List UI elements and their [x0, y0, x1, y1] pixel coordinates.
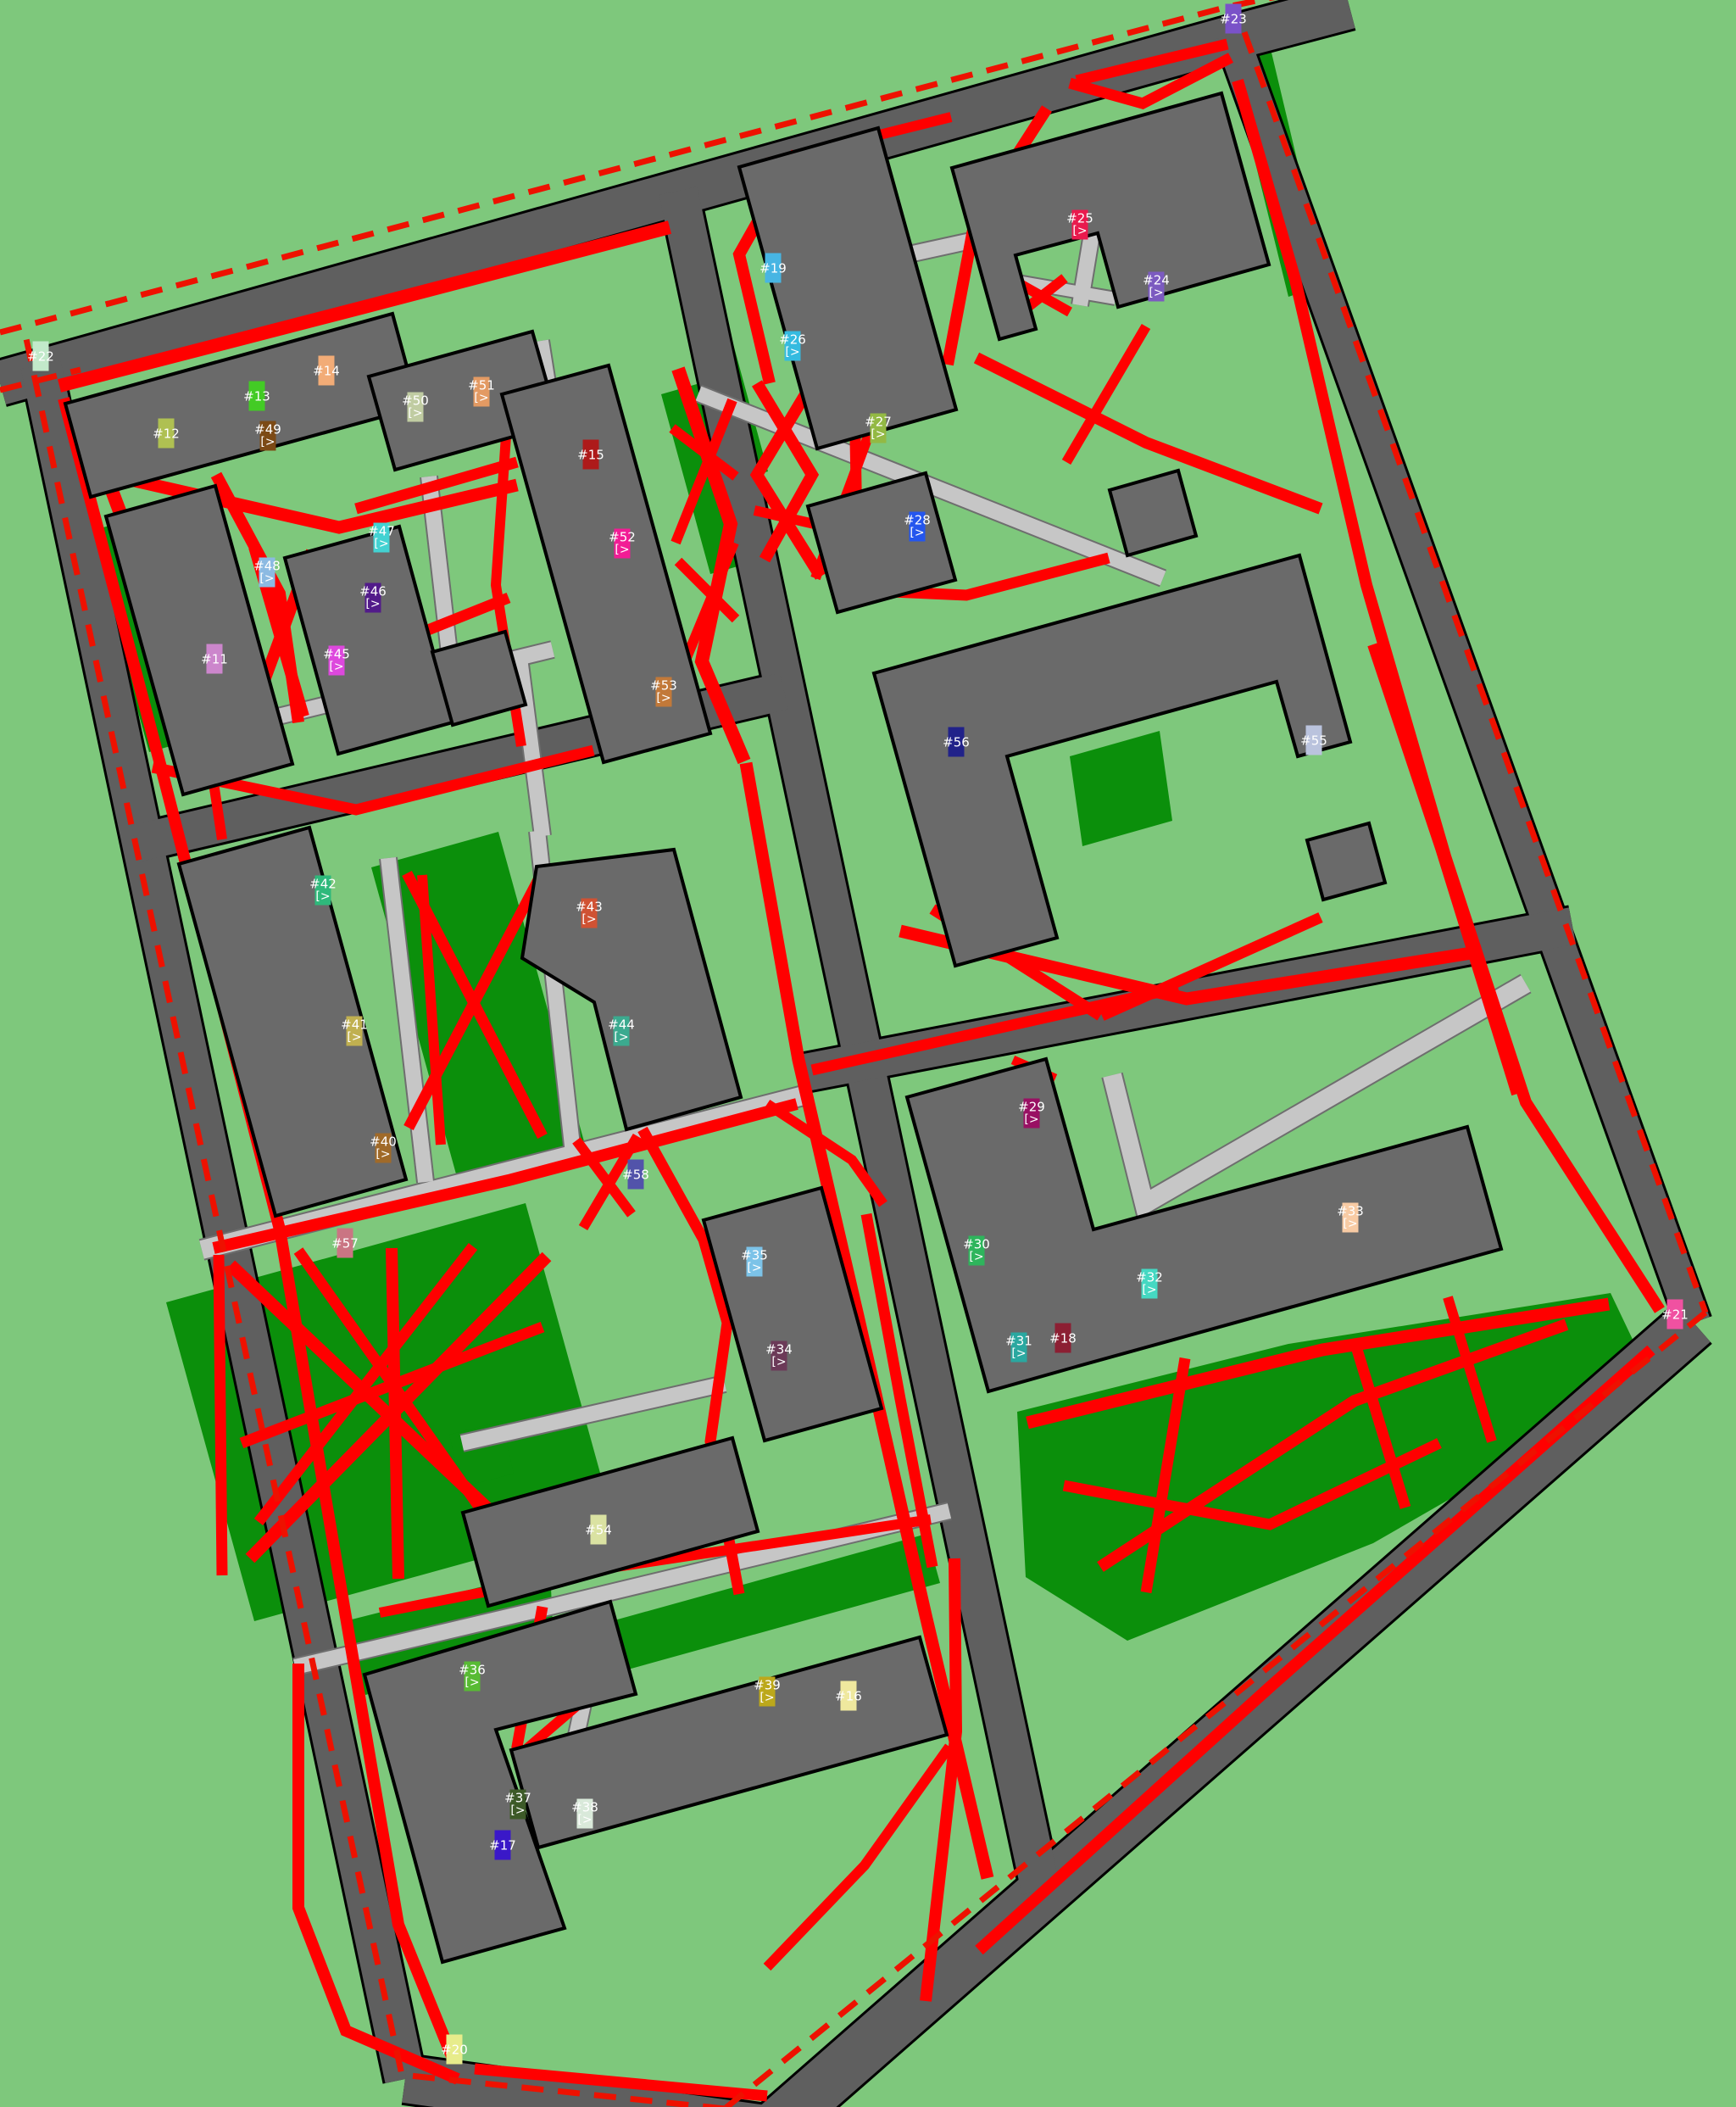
agent-id-label: #54 — [585, 1523, 612, 1536]
agent-flag-icon: [> — [408, 408, 422, 421]
agent-id-label: #12 — [153, 426, 180, 440]
agent-marker[interactable]: #23 — [1226, 4, 1242, 34]
agent-marker[interactable]: #31[> — [1011, 1333, 1027, 1363]
agent-flag-icon: [> — [510, 1805, 525, 1818]
agent-flag-icon: [> — [771, 1357, 786, 1369]
agent-marker[interactable]: #43[> — [581, 899, 598, 928]
agent-flag-icon: [> — [910, 527, 924, 540]
agent-marker[interactable]: #25[> — [1072, 210, 1088, 240]
agent-marker[interactable]: #14 — [319, 356, 335, 386]
agent-id-label: #51 — [468, 379, 495, 393]
agent-marker[interactable]: #13 — [249, 382, 265, 411]
agent-id-label: #43 — [576, 900, 603, 914]
agent-marker[interactable]: #49[> — [260, 421, 276, 451]
agent-id-label: #22 — [27, 349, 54, 363]
agent-id-label: #33 — [1337, 1205, 1364, 1218]
agent-flag-icon: [> — [474, 393, 488, 405]
agent-flag-icon: [> — [1149, 287, 1163, 300]
agent-flag-icon: [> — [785, 347, 799, 360]
agent-id-label: #42 — [309, 878, 337, 891]
agent-id-label: #58 — [622, 1168, 649, 1181]
agent-marker[interactable]: #41[> — [347, 1017, 363, 1046]
agent-flag-icon: [> — [1142, 1285, 1156, 1297]
agent-flag-icon: [> — [329, 661, 343, 674]
agent-marker[interactable]: #11 — [207, 644, 223, 674]
agent-id-label: #16 — [835, 1689, 862, 1703]
agent-marker[interactable]: #50[> — [408, 393, 424, 422]
agent-marker[interactable]: #18 — [1055, 1324, 1071, 1353]
agent-flag-icon: [> — [969, 1251, 983, 1264]
agent-flag-icon: [> — [1024, 1114, 1038, 1127]
agent-flag-icon: [> — [747, 1263, 761, 1275]
agent-id-label: #52 — [609, 531, 636, 544]
agent-flag-icon: [> — [759, 1692, 774, 1705]
agent-id-label: #23 — [1220, 12, 1247, 25]
agent-marker[interactable]: #26[> — [785, 332, 801, 361]
agent-id-label: #18 — [1049, 1331, 1077, 1345]
agent-marker[interactable]: #21 — [1667, 1300, 1683, 1329]
agent-flag-icon: [> — [871, 429, 885, 442]
agent-id-label: #57 — [331, 1236, 359, 1250]
agent-marker[interactable]: #28[> — [910, 512, 926, 542]
agent-id-label: #17 — [489, 1838, 516, 1852]
agent-id-label: #53 — [650, 679, 677, 693]
agent-id-label: #30 — [963, 1238, 990, 1251]
agent-id-label: #25 — [1066, 212, 1093, 226]
agent-marker[interactable]: #56 — [949, 727, 965, 757]
agent-id-label: #26 — [779, 333, 806, 347]
agent-id-label: #20 — [441, 2043, 468, 2056]
agent-marker[interactable]: #35[> — [747, 1247, 763, 1277]
agent-id-label: #55 — [1300, 733, 1327, 747]
agent-flag-icon: [> — [614, 1032, 628, 1045]
agent-marker[interactable]: #47[> — [374, 523, 390, 553]
agent-id-label: #56 — [943, 735, 970, 749]
agent-id-label: #49 — [254, 423, 281, 437]
agent-id-label: #37 — [504, 1792, 531, 1805]
agent-marker[interactable]: #55 — [1306, 726, 1322, 755]
simulation-page: { "colors": { "background": "#7EC87C", "… — [0, 0, 1736, 2107]
agent-marker[interactable]: #34[> — [771, 1341, 787, 1371]
agent-id-label: #32 — [1136, 1271, 1163, 1285]
agent-id-label: #36 — [459, 1664, 486, 1677]
agent-flag-icon: [> — [376, 1149, 390, 1162]
agent-marker[interactable]: #37[> — [510, 1790, 526, 1820]
agent-marker[interactable]: #30[> — [969, 1236, 985, 1266]
agent-marker[interactable]: #52[> — [615, 529, 631, 559]
agent-id-label: #41 — [341, 1018, 368, 1032]
agent-flag-icon: [> — [465, 1677, 479, 1690]
agent-id-label: #40 — [370, 1135, 397, 1149]
agent-marker[interactable]: #45[> — [329, 646, 345, 676]
agent-id-label: #44 — [608, 1018, 635, 1032]
agent-flag-icon: [> — [1011, 1348, 1026, 1361]
agent-marker[interactable]: #48[> — [259, 558, 275, 588]
agent-marker[interactable]: #12 — [159, 419, 175, 449]
agent-id-label: #48 — [253, 560, 281, 573]
agent-id-label: #47 — [368, 525, 395, 538]
agent-marker[interactable]: #32[> — [1142, 1269, 1158, 1299]
agent-marker[interactable]: #40[> — [376, 1134, 392, 1163]
agent-marker[interactable]: #51[> — [474, 377, 490, 407]
agent-flag-icon: [> — [260, 437, 275, 449]
agent-marker[interactable]: #57 — [337, 1229, 353, 1258]
agent-flag-icon: [> — [577, 1814, 592, 1827]
agent-marker[interactable]: #46[> — [365, 583, 381, 613]
agent-id-label: #31 — [1005, 1335, 1032, 1348]
agent-marker[interactable]: #38[> — [577, 1799, 593, 1829]
agent-flag-icon: [> — [365, 599, 380, 611]
agent-marker[interactable]: #33[> — [1343, 1203, 1359, 1233]
agent-marker[interactable]: #19 — [765, 254, 782, 283]
agent-marker[interactable]: #20 — [447, 2035, 463, 2065]
agent-id-label: #38 — [571, 1801, 598, 1814]
agent-marker[interactable]: #16 — [841, 1681, 857, 1711]
agent-marker[interactable]: #22 — [33, 342, 49, 371]
agent-id-label: #11 — [201, 652, 228, 666]
agent-marker[interactable]: #15 — [583, 440, 599, 470]
agent-flag-icon: [> — [259, 573, 274, 586]
agent-marker[interactable]: #39[> — [759, 1677, 776, 1707]
agent-flag-icon: [> — [581, 914, 596, 927]
agent-flag-icon: [> — [374, 538, 388, 551]
agent-flag-icon: [> — [315, 891, 330, 904]
agent-id-label: #13 — [243, 389, 270, 403]
agent-marker[interactable]: #29[> — [1024, 1099, 1040, 1129]
agent-marker[interactable]: #53[> — [656, 677, 672, 707]
agent-marker[interactable]: #27[> — [871, 414, 887, 443]
agent-id-label: #21 — [1661, 1307, 1689, 1321]
agent-marker[interactable]: #36[> — [465, 1662, 481, 1692]
agent-id-label: #50 — [402, 394, 429, 408]
agent-id-label: #14 — [313, 364, 340, 377]
agent-marker[interactable]: #54 — [591, 1515, 607, 1545]
agent-marker[interactable]: #17 — [495, 1831, 511, 1860]
agent-id-label: #27 — [865, 415, 892, 429]
agent-flag-icon: [> — [615, 544, 629, 557]
agent-id-label: #28 — [904, 514, 931, 527]
agent-flag-icon: [> — [1343, 1218, 1357, 1231]
agent-id-label: #15 — [577, 448, 604, 461]
agent-id-label: #35 — [741, 1249, 768, 1263]
agent-marker[interactable]: #44[> — [614, 1017, 630, 1046]
agent-layer: #11#12#13#14#15#16#17#18#19#20#21#22#23#… — [0, 0, 1736, 2107]
agent-flag-icon: [> — [347, 1032, 361, 1045]
agent-marker[interactable]: #42[> — [315, 876, 331, 906]
agent-flag-icon: [> — [1072, 226, 1087, 238]
agent-id-label: #19 — [759, 261, 787, 275]
agent-id-label: #39 — [754, 1679, 781, 1692]
agent-id-label: #46 — [359, 585, 387, 599]
agent-id-label: #45 — [323, 648, 350, 661]
agent-marker[interactable]: #24[> — [1149, 272, 1165, 302]
agent-id-label: #34 — [765, 1343, 793, 1357]
agent-id-label: #24 — [1143, 274, 1170, 287]
agent-flag-icon: [> — [656, 693, 670, 705]
agent-id-label: #29 — [1018, 1101, 1045, 1114]
agent-marker[interactable]: #58 — [628, 1160, 644, 1190]
